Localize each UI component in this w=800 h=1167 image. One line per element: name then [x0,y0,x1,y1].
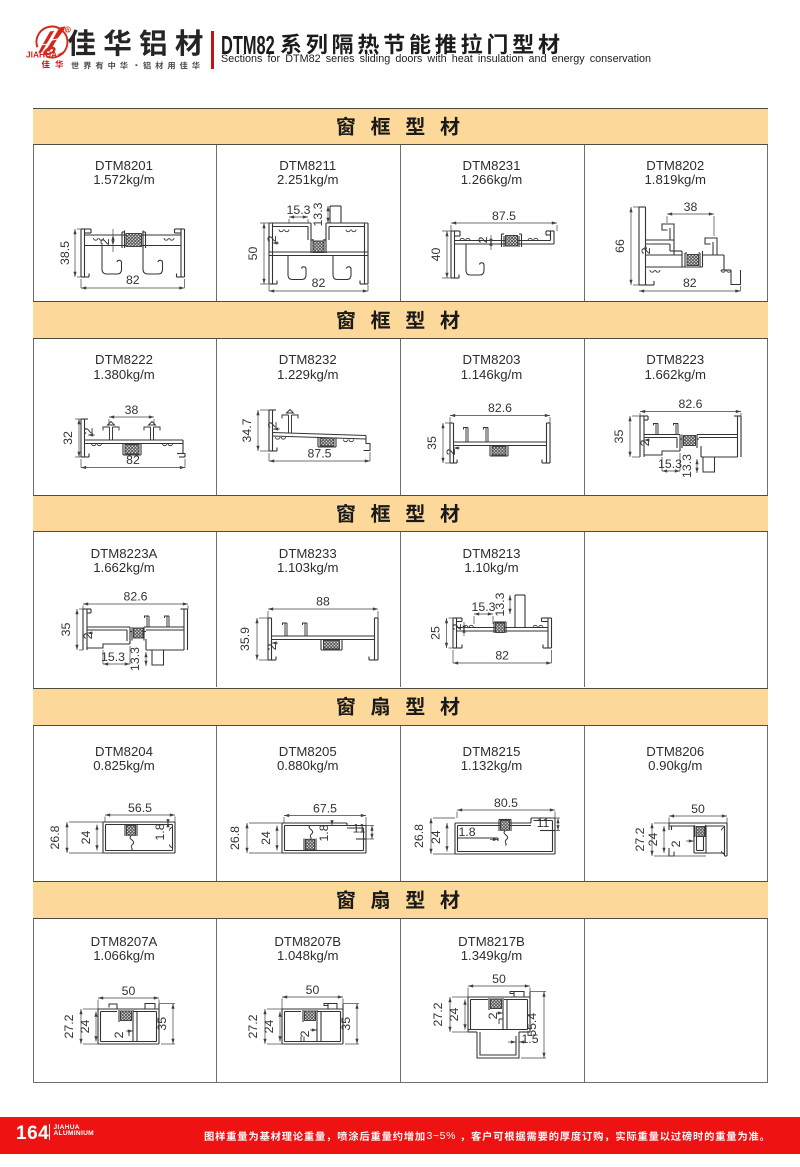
svg-text:3~5%: 3~5% [427,1130,457,1142]
